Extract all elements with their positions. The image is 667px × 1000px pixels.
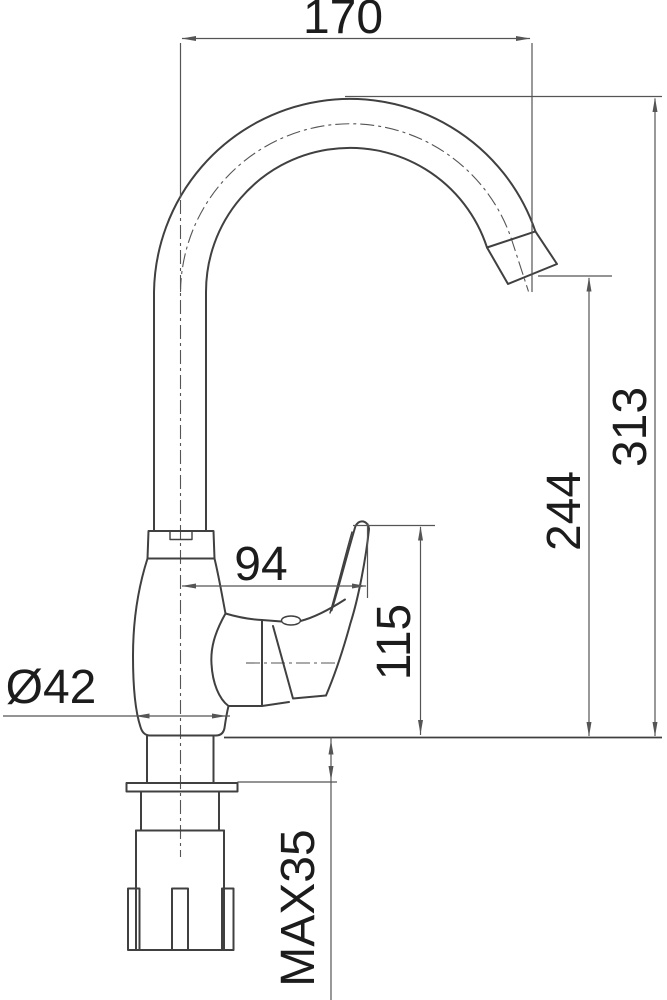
dim-115-arrow-bottom <box>418 720 423 735</box>
handle-inner-contour <box>330 532 352 613</box>
indicator-button <box>282 616 301 625</box>
dim-42-arrow-right <box>212 714 227 719</box>
nut-side-walls <box>136 831 224 950</box>
cartridge-cap-bulge <box>211 614 228 707</box>
dimension-label-94: 94 <box>234 541 287 589</box>
nut-rib-middle <box>172 889 188 950</box>
dimension-label-313: 313 <box>607 387 655 467</box>
dimension-label-244: 244 <box>541 471 589 551</box>
dim-313-arrow-top <box>653 98 658 113</box>
dimension-label-170: 170 <box>303 0 383 42</box>
cartridge-bottom <box>229 702 290 706</box>
dimension-label-max35: MAX35 <box>275 829 323 986</box>
dim-max35-arrow-down <box>329 766 334 781</box>
dim-115-arrow-top <box>418 526 423 541</box>
faucet-technical-drawing: 170 313 244 94 115 Ø42 MAX35 <box>0 0 667 1000</box>
dim-170-arrow-right <box>516 36 531 41</box>
dim-max35-arrow-up <box>329 740 334 755</box>
dim-244-arrow-top <box>587 277 592 292</box>
dim-94-arrow-left <box>182 584 197 589</box>
dim-170-arrow-left <box>182 36 197 41</box>
dimension-label-115: 115 <box>371 604 419 681</box>
dim-313-arrow-bottom <box>653 722 658 737</box>
centerlines <box>181 124 529 857</box>
cartridge-top-left <box>226 614 282 622</box>
spout-inner-arc <box>206 148 487 292</box>
handle-left-edge <box>332 526 356 611</box>
dim-244-arrow-bottom <box>587 722 592 737</box>
cartridge-inner-slant <box>273 626 326 699</box>
dimension-label-diameter-42: Ø42 <box>6 664 97 712</box>
cartridge-top-right <box>301 600 346 622</box>
nut-rib-left <box>128 889 140 950</box>
flange-washer <box>127 783 238 792</box>
